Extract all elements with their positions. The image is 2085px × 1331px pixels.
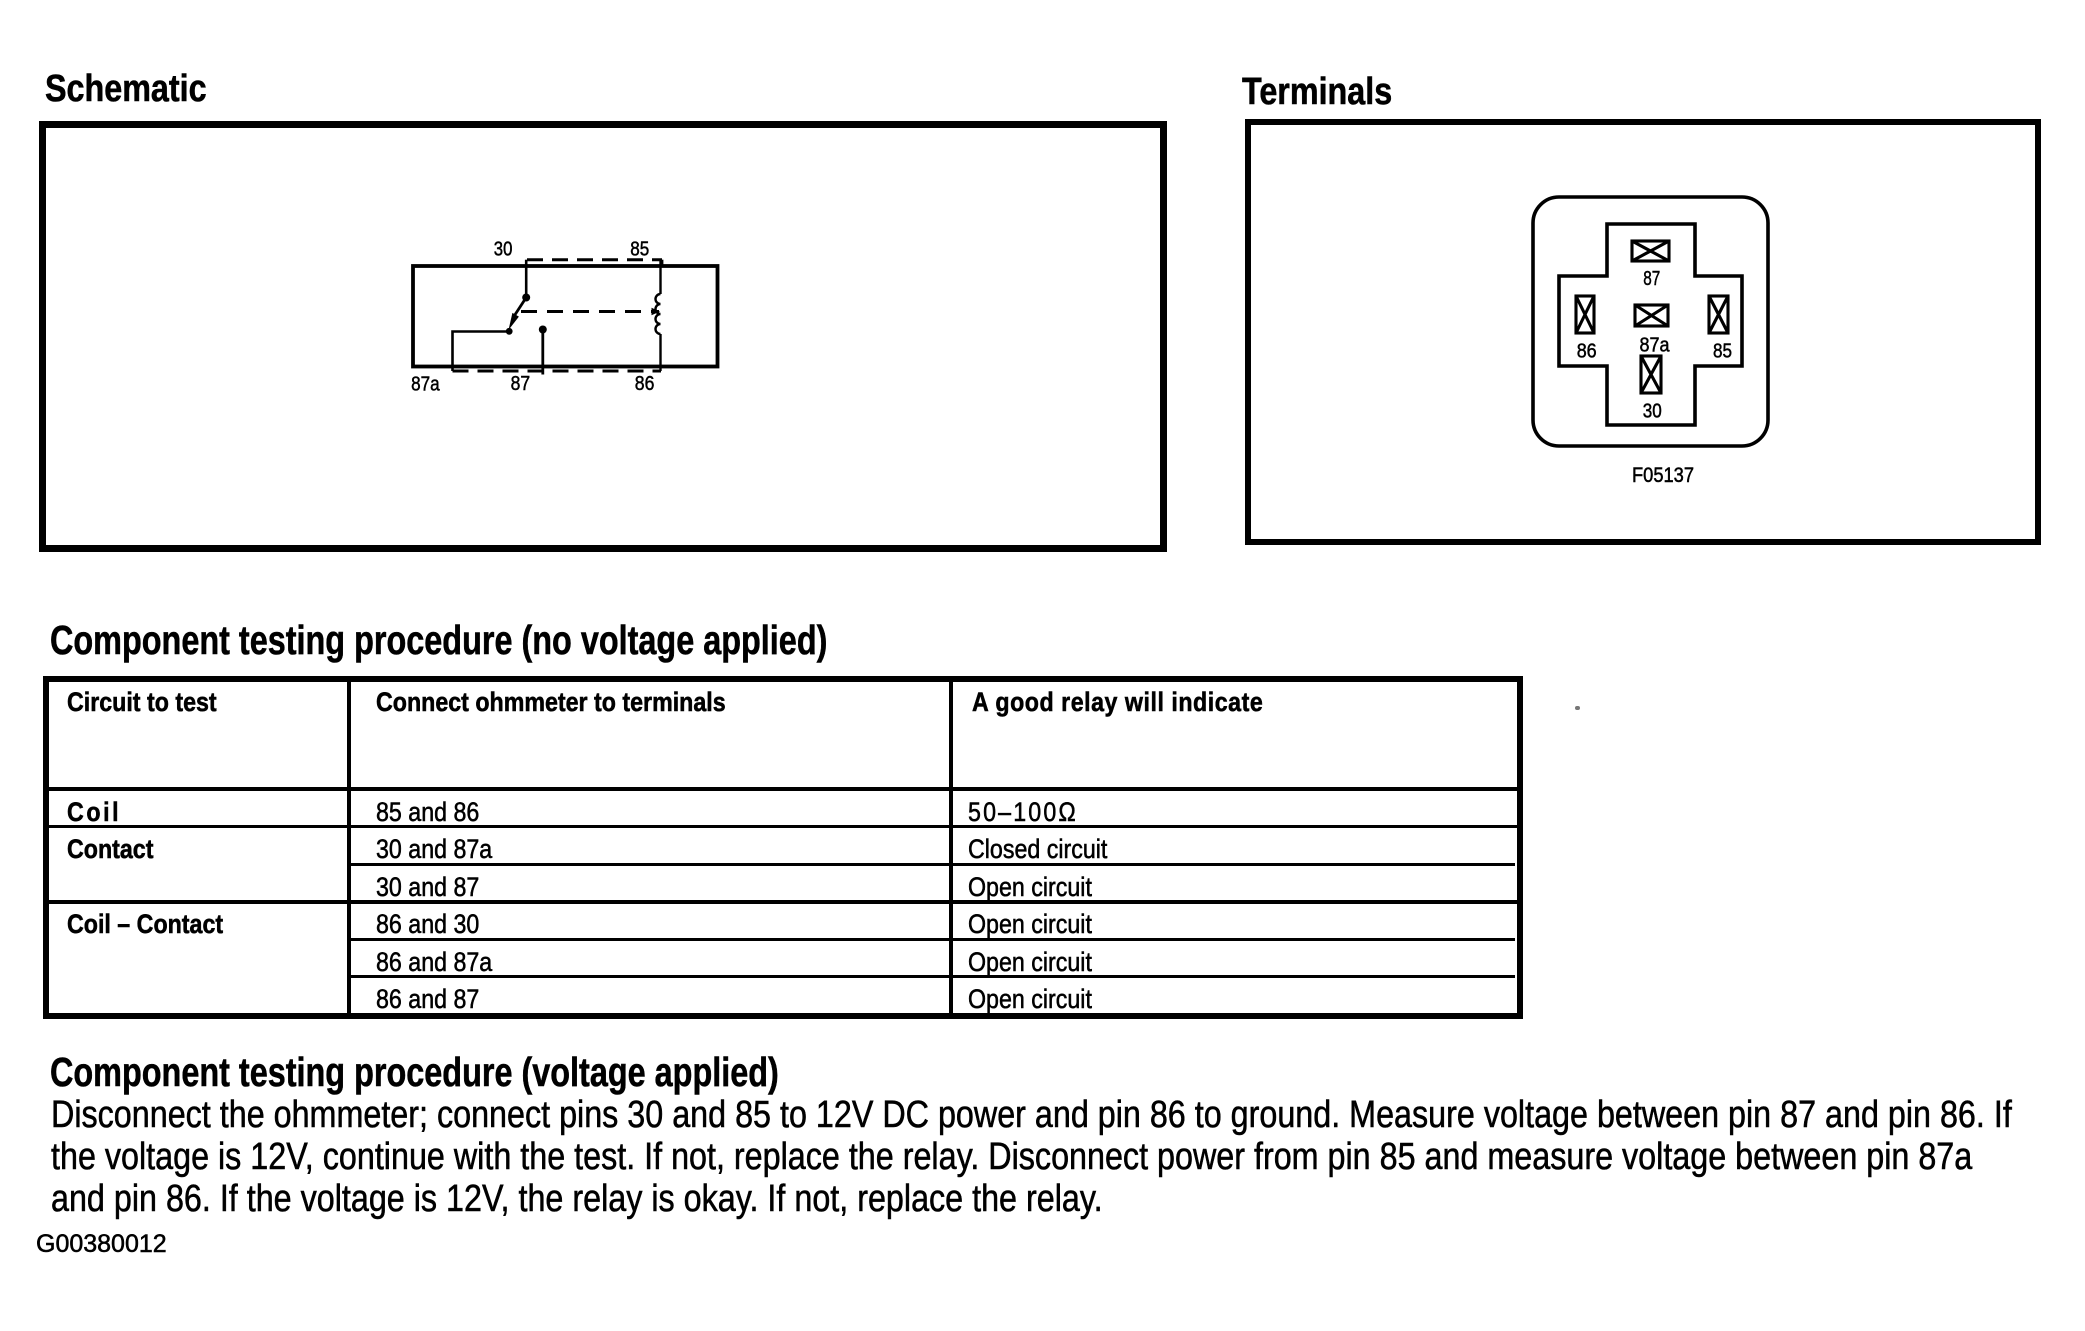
svg-text:87a: 87a [1640,335,1671,357]
svg-text:87a: 87a [411,374,440,396]
svg-text:86: 86 [1577,341,1597,363]
svg-text:86: 86 [635,373,655,395]
svg-text:30: 30 [494,238,513,260]
svg-text:87: 87 [1643,268,1660,290]
svg-text:F05137: F05137 [1632,464,1694,487]
svg-text:85: 85 [630,238,649,260]
svg-text:87: 87 [511,373,531,395]
svg-text:30: 30 [1643,401,1662,423]
svg-text:85: 85 [1713,341,1732,363]
